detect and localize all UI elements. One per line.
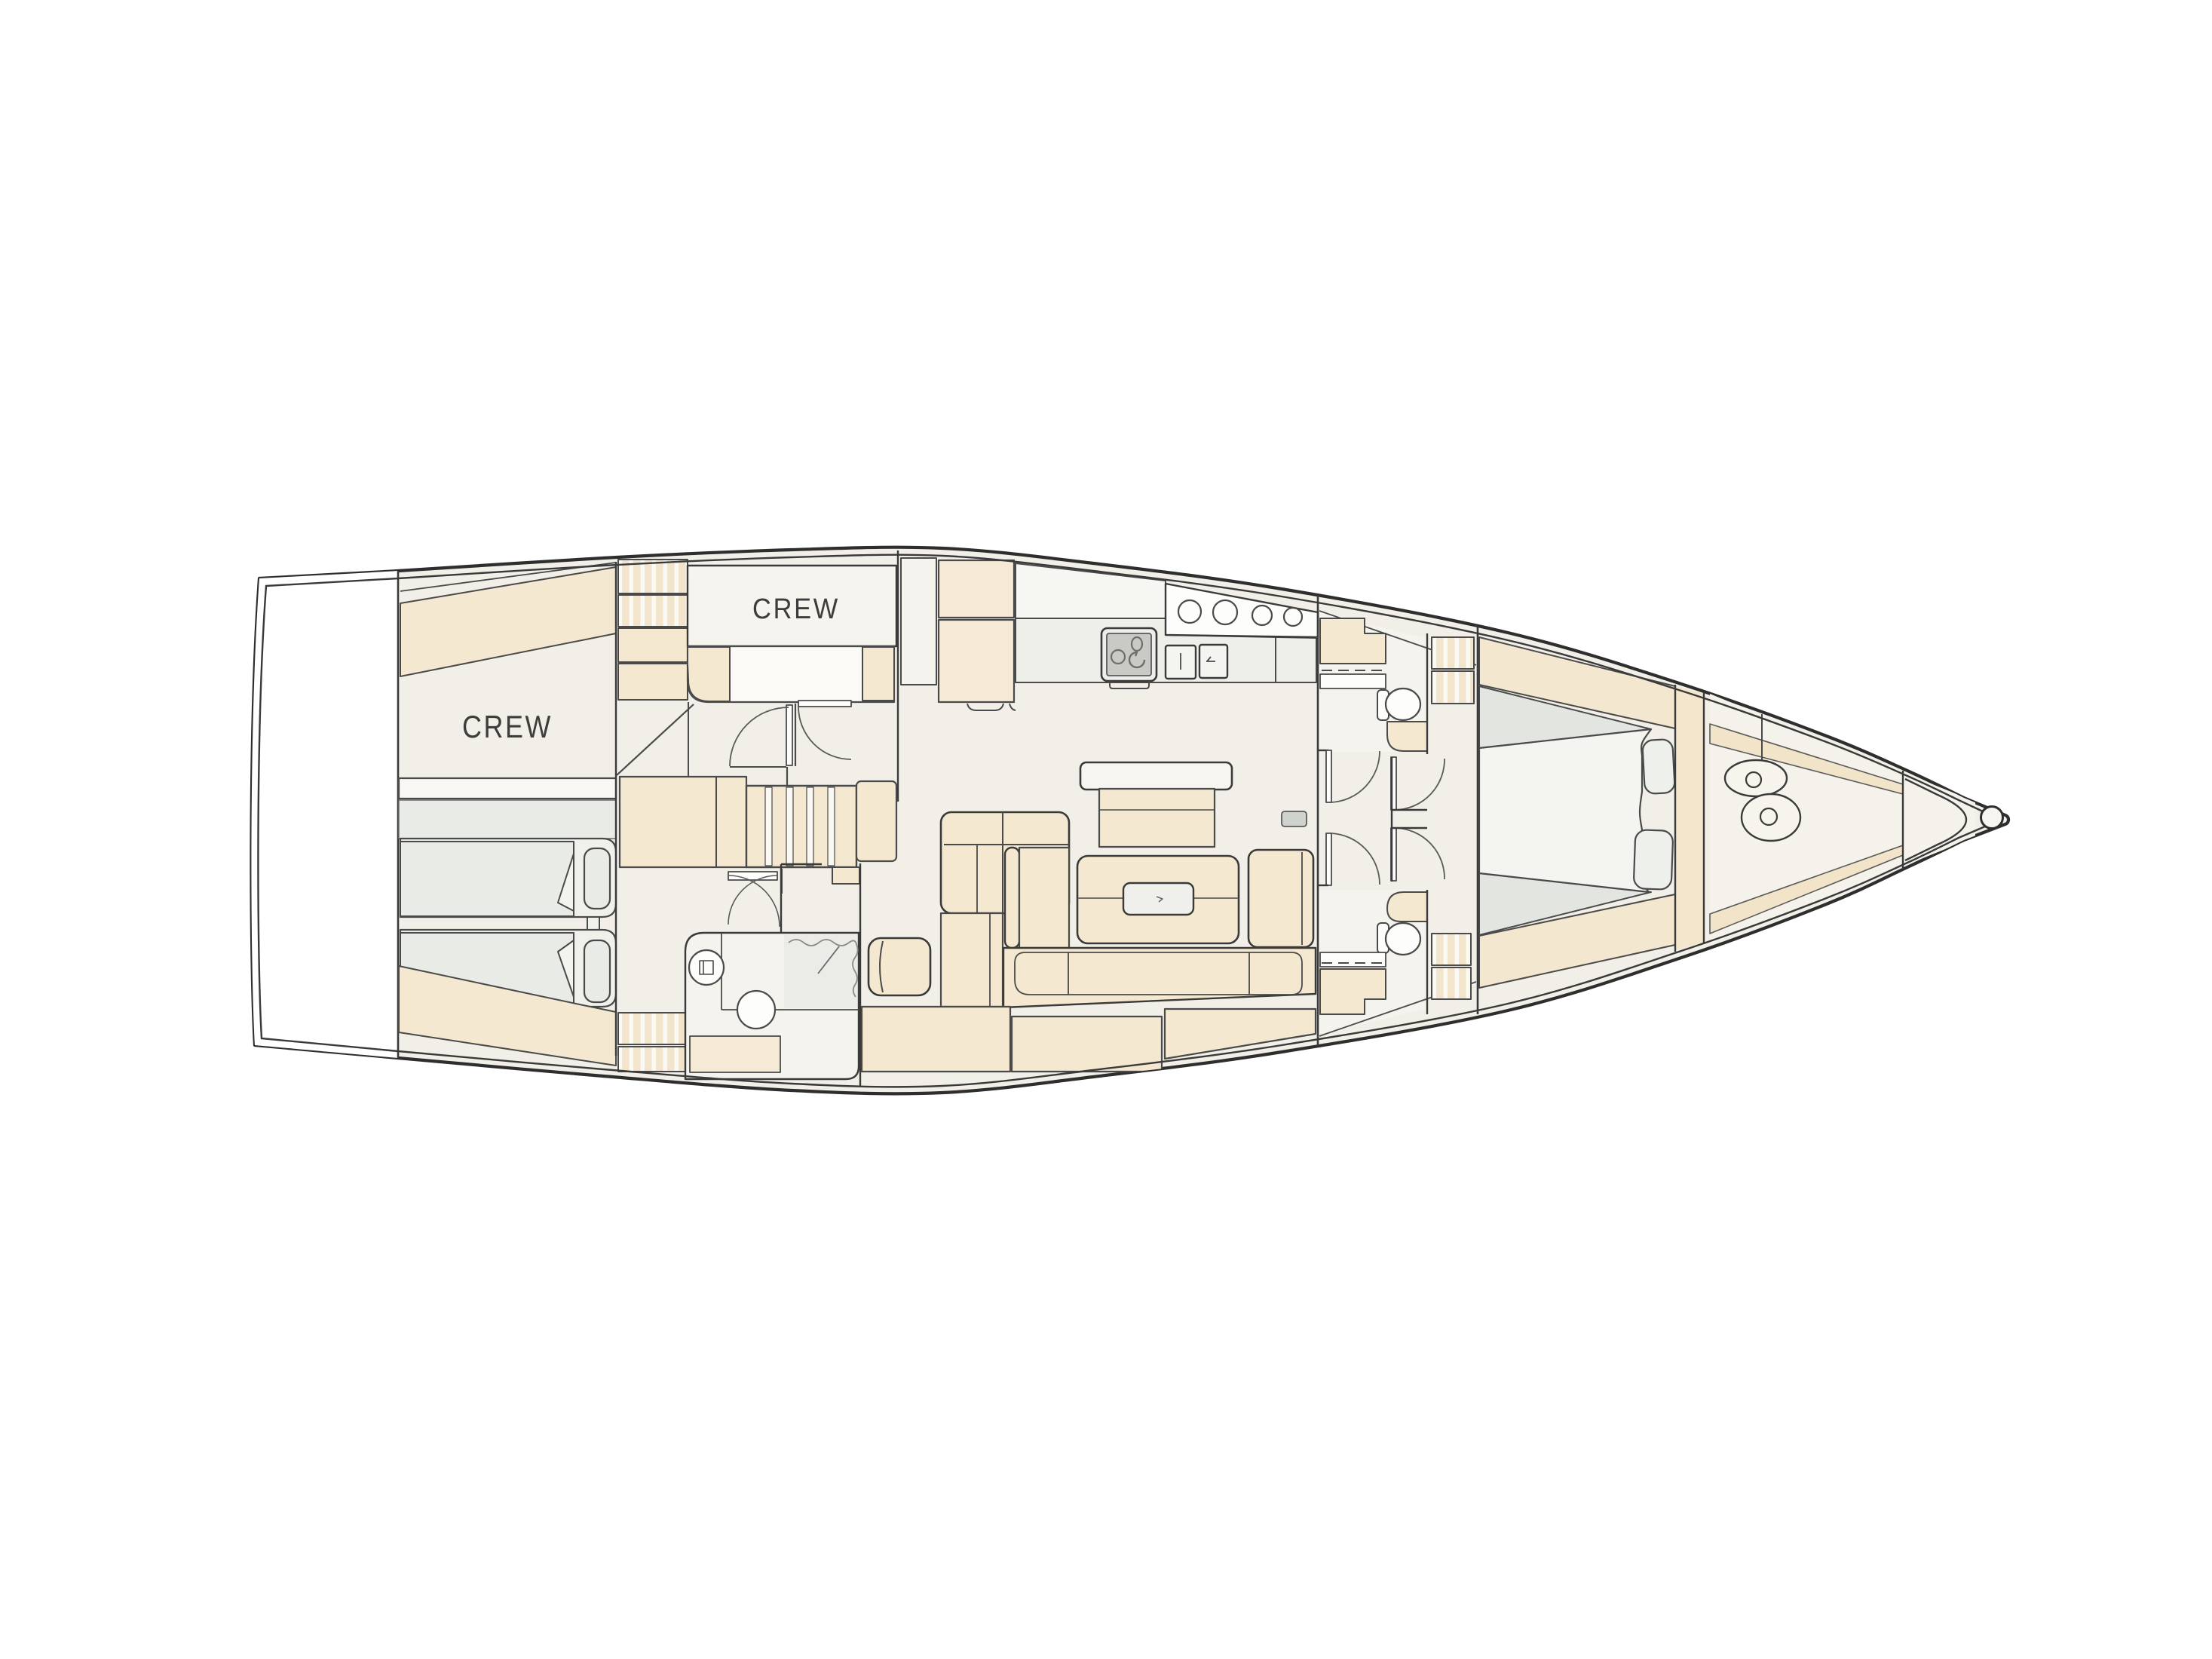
svg-text:CREW: CREW [462,709,553,744]
svg-text:CREW: CREW [752,593,840,625]
